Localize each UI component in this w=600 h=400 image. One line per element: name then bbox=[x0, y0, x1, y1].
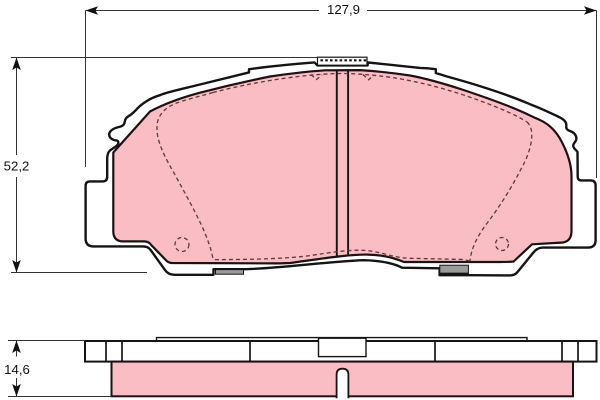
svg-text:127,9: 127,9 bbox=[327, 2, 360, 17]
svg-text:14,6: 14,6 bbox=[4, 362, 30, 377]
svg-text:52,2: 52,2 bbox=[4, 159, 30, 174]
